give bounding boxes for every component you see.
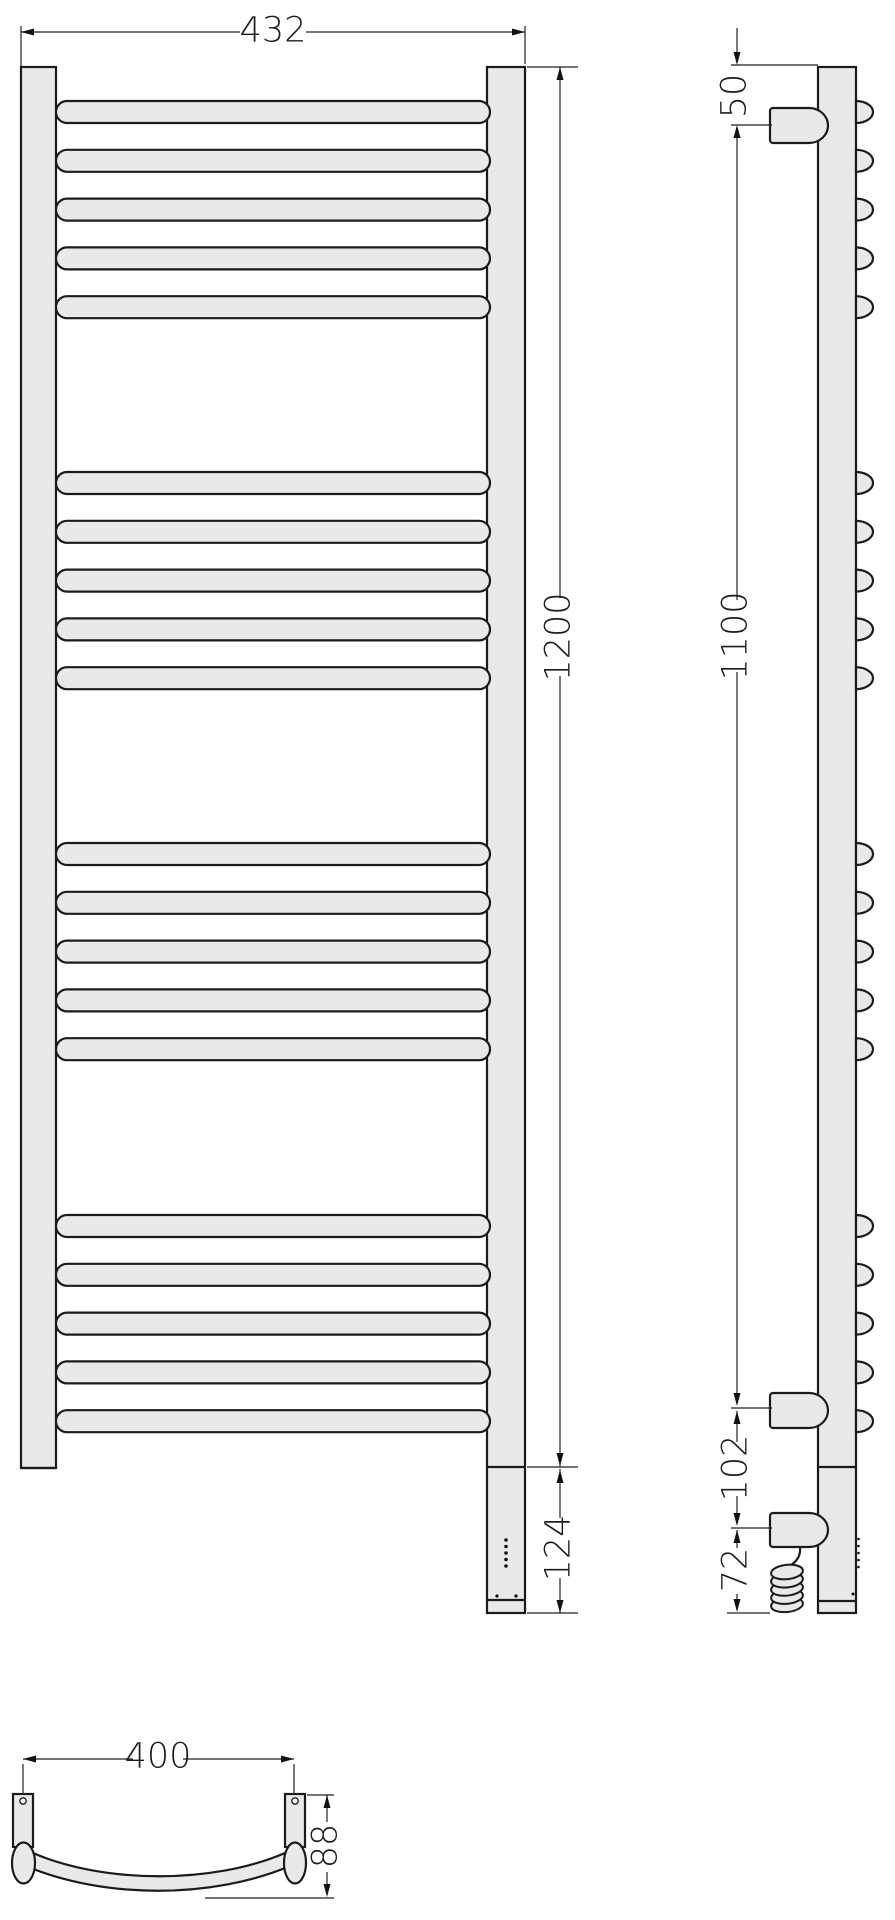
- towel-bar: [56, 941, 490, 963]
- dimension-arrow: [557, 1470, 564, 1483]
- side-bar-end-bump: [856, 1264, 873, 1286]
- dimension-arrow: [281, 1756, 294, 1763]
- side-bar-end-bump: [856, 667, 873, 689]
- towel-bar: [56, 1410, 490, 1432]
- side-bar-end-bump: [856, 199, 873, 221]
- dim-label-side-lower-offset: 102: [719, 1435, 754, 1502]
- technical-drawing: 432 1200 124 50 1100 102 72 400 88: [0, 0, 895, 1920]
- side-bar-end-bump: [856, 101, 873, 123]
- dimension-arrow: [557, 67, 564, 80]
- front-left-post: [21, 67, 56, 1468]
- curved-bar-band: [26, 1853, 290, 1891]
- wall-bracket: [770, 108, 828, 143]
- towel-bar: [56, 618, 490, 640]
- mounting-hole: [292, 1798, 298, 1804]
- side-bar-end-bump: [856, 1215, 873, 1237]
- towel-bar: [56, 1264, 490, 1286]
- dimension-arrow: [734, 1513, 741, 1526]
- towel-bar: [56, 150, 490, 172]
- dim-label-top-depth: 88: [309, 1824, 344, 1869]
- dim-label-top-mount-spacing: 400: [125, 1740, 192, 1775]
- towel-bar: [56, 296, 490, 318]
- side-bar-end-bump: [856, 941, 873, 963]
- post-tube-section: [284, 1843, 306, 1884]
- dimension-arrow: [734, 1599, 741, 1612]
- side-led-dot: [857, 1538, 860, 1541]
- towel-bar: [56, 1038, 490, 1060]
- towel-bar: [56, 247, 490, 269]
- towel-bar: [56, 570, 490, 592]
- dimension-arrow: [324, 1884, 331, 1897]
- screw-dot: [514, 1594, 517, 1597]
- led-indicator-dot: [504, 1551, 508, 1555]
- dim-label-front-height: 1200: [542, 592, 577, 681]
- side-screw-dot: [852, 1593, 855, 1596]
- side-post-profile: [818, 67, 856, 1613]
- dimension-arrow: [23, 1756, 36, 1763]
- dim-label-side-bracket-span: 1100: [719, 591, 754, 680]
- dimension-arrow: [734, 125, 741, 138]
- front-right-post: [487, 67, 525, 1613]
- side-led-dot: [857, 1552, 860, 1555]
- side-bar-end-bump: [856, 570, 873, 592]
- towel-bar: [56, 199, 490, 221]
- towel-bar: [56, 1215, 490, 1237]
- side-led-dot: [857, 1545, 860, 1548]
- wall-bracket: [770, 1393, 828, 1428]
- dim-label-side-bottom-offset: 72: [719, 1548, 754, 1593]
- side-bar-end-bump: [856, 521, 873, 543]
- dimension-arrow: [734, 1530, 741, 1543]
- side-led-dot: [857, 1559, 860, 1562]
- dimension-arrow: [557, 1453, 564, 1466]
- cable-entry-housing: [770, 1513, 828, 1547]
- dim-label-side-top-offset: 50: [718, 74, 753, 119]
- towel-bar: [56, 1361, 490, 1383]
- side-bar-end-bump: [856, 1038, 873, 1060]
- side-bar-end-bump: [856, 1313, 873, 1335]
- towel-bar: [56, 843, 490, 865]
- drawing-canvas: [0, 0, 895, 1920]
- dimension-arrow: [734, 52, 741, 65]
- side-bar-end-bump: [856, 1361, 873, 1383]
- post-tube-section: [12, 1843, 35, 1884]
- led-indicator-dot: [504, 1538, 508, 1542]
- dimension-arrow: [512, 29, 525, 36]
- led-indicator-dot: [504, 1564, 508, 1568]
- dimension-arrow: [557, 1600, 564, 1613]
- dimension-arrow: [734, 1411, 741, 1424]
- side-bar-end-bump: [856, 247, 873, 269]
- dimension-arrow: [21, 29, 34, 36]
- led-indicator-dot: [504, 1558, 508, 1562]
- side-bar-end-bump: [856, 989, 873, 1011]
- towel-bar: [56, 521, 490, 543]
- side-bar-end-bump: [856, 1410, 873, 1432]
- towel-bar: [56, 892, 490, 914]
- dim-label-front-width: 432: [240, 14, 307, 49]
- dim-label-heater-section: 124: [542, 1515, 577, 1582]
- towel-bar: [56, 472, 490, 494]
- side-bar-end-bump: [856, 296, 873, 318]
- side-bar-end-bump: [856, 472, 873, 494]
- dimension-arrow: [324, 1795, 331, 1808]
- dimension-arrow: [734, 1393, 741, 1406]
- side-bar-end-bump: [856, 892, 873, 914]
- led-indicator-dot: [504, 1545, 508, 1549]
- side-bar-end-bump: [856, 843, 873, 865]
- towel-bar: [56, 101, 490, 123]
- towel-bar: [56, 667, 490, 689]
- screw-dot: [495, 1594, 498, 1597]
- side-led-dot: [857, 1566, 860, 1569]
- towel-bar: [56, 1313, 490, 1335]
- towel-bar: [56, 989, 490, 1011]
- side-bar-end-bump: [856, 618, 873, 640]
- mounting-hole: [20, 1798, 26, 1804]
- side-bar-end-bump: [856, 150, 873, 172]
